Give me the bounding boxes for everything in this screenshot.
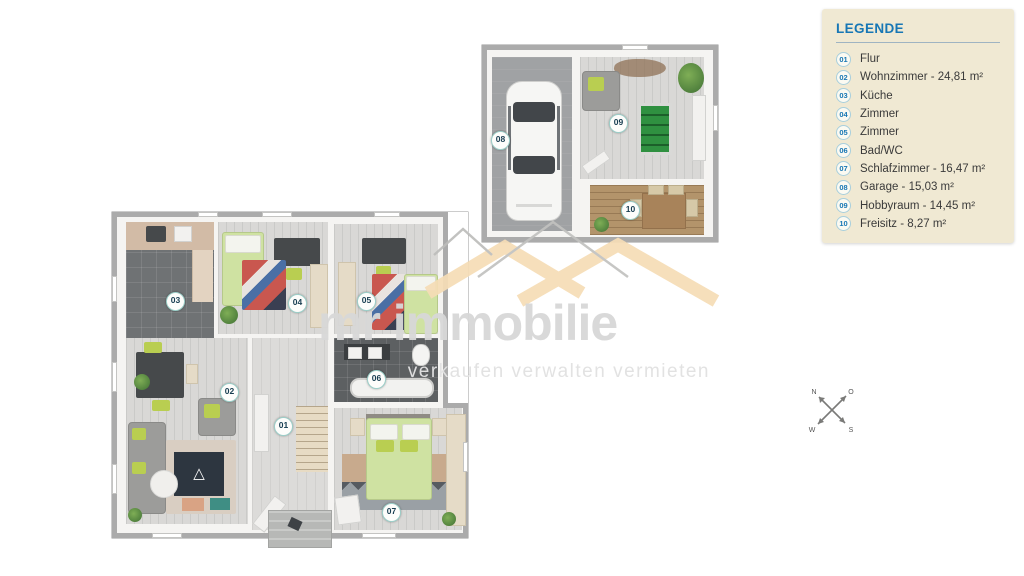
deck-chair-top-2 (668, 185, 684, 195)
window (622, 45, 648, 50)
legend-label: Küche (860, 90, 893, 102)
deck-chair-top-1 (648, 185, 664, 195)
legend-item: 10 Freisitz - 8,27 m² (836, 215, 1000, 233)
dining-chair-right (186, 364, 198, 384)
ottoman (150, 470, 178, 498)
roof-gray-left (434, 229, 492, 255)
car (506, 81, 562, 221)
legend-badge: 09 (836, 198, 851, 213)
kitchen-counter-side (192, 250, 213, 302)
legend-item: 05 Zimmer (836, 123, 1000, 141)
room-badge-08: 08 (491, 131, 510, 150)
chair-room04 (286, 268, 302, 280)
rug-orange-patch (182, 498, 204, 511)
legend-badge: 08 (836, 180, 851, 195)
legend-label: Garage - 15,03 m² (860, 181, 954, 193)
hobby-plant (678, 63, 704, 93)
window (713, 105, 718, 131)
bed-green-pillow-1 (376, 440, 394, 452)
legend-label: Zimmer (860, 126, 899, 138)
legend-label: Wohnzimmer - 24,81 m² (860, 71, 983, 83)
legend-item: 08 Garage - 15,03 m² (836, 178, 1000, 196)
window (112, 276, 117, 302)
hobby-armchair-pillow (588, 77, 604, 91)
room-badge-04: 04 (288, 294, 307, 313)
legend-item: 06 Bad/WC (836, 141, 1000, 159)
bed-green-pillow-2 (400, 440, 418, 452)
window (112, 362, 117, 392)
room-badge-07: 07 (382, 503, 401, 522)
stove (146, 226, 166, 242)
desk-room05 (362, 238, 406, 264)
armchair-pillow (204, 404, 220, 418)
legend-label: Bad/WC (860, 145, 903, 157)
legend-badge: 10 (836, 216, 851, 231)
rug-room04 (242, 260, 286, 310)
legend-panel: LEGENDE 01 Flur 02 Wohnzimmer - 24,81 m²… (822, 9, 1014, 243)
floorplan-page: { "legend": { "title": "LEGENDE", "items… (0, 0, 1024, 576)
plant-bedroom (442, 512, 456, 526)
car-windshield (513, 102, 555, 122)
window (463, 442, 468, 472)
legend-badge: 01 (836, 52, 851, 67)
window (198, 212, 218, 217)
legend-badge: 05 (836, 125, 851, 140)
staircase (296, 406, 328, 472)
entrance-porch (268, 510, 332, 548)
legend-label: Freisitz - 8,27 m² (860, 218, 946, 230)
car-rear-window (513, 156, 555, 174)
legend-item: 02 Wohnzimmer - 24,81 m² (836, 68, 1000, 86)
brand-tagline: verkaufen verwalten vermieten (325, 361, 710, 383)
legend-item: 09 Hobbyraum - 14,45 m² (836, 196, 1000, 214)
hobby-counter (692, 95, 706, 161)
legend-badge: 06 (836, 143, 851, 158)
legend-item: 07 Schlafzimmer - 16,47 m² (836, 160, 1000, 178)
legend-item: 01 Flur (836, 50, 1000, 68)
room-badge-09: 09 (609, 114, 628, 133)
compass-label-south: S (849, 427, 854, 434)
plant-living-1 (134, 374, 150, 390)
compass-label-west: W (809, 427, 816, 434)
plant-living-2 (128, 508, 142, 522)
legend-badge: 04 (836, 107, 851, 122)
hall-cabinet (254, 394, 269, 452)
compass-rose: N O W S (806, 384, 858, 436)
bedroom-desk (334, 494, 362, 525)
sofa-pillow-2 (132, 462, 146, 474)
foosball-table (638, 103, 672, 155)
kitchen-counter (126, 222, 214, 250)
compass-label-east: O (848, 389, 854, 396)
bed-pillow-2 (402, 424, 430, 440)
pillow-room04 (225, 235, 261, 253)
brand-watermark: mr immobilie (318, 294, 617, 352)
legend-divider (836, 42, 1000, 43)
legend-item: 03 Küche (836, 87, 1000, 105)
bed-pillow-1 (370, 424, 398, 440)
kitchen-sink (174, 226, 192, 242)
porch-mat (287, 517, 302, 531)
legend-badge: 02 (836, 70, 851, 85)
car-side-window-right (557, 106, 560, 170)
window (152, 533, 182, 538)
room-badge-01: 01 (274, 417, 293, 436)
legend-badge: 07 (836, 161, 851, 176)
legend-label: Flur (860, 53, 880, 65)
compass-label-north: N (811, 389, 816, 396)
dining-chair-bottom (152, 400, 170, 411)
legend-item: 04 Zimmer (836, 105, 1000, 123)
window (262, 212, 292, 217)
window (112, 464, 117, 494)
window (374, 212, 400, 217)
nightstand-right (432, 418, 447, 436)
legend-label: Hobbyraum - 14,45 m² (860, 200, 975, 212)
legend-label: Zimmer (860, 108, 899, 120)
sofa-pillow-1 (132, 428, 146, 440)
window (362, 533, 396, 538)
room-badge-03: 03 (166, 292, 185, 311)
rug-dark-block: △ (174, 452, 224, 496)
rug-teal-patch (210, 498, 230, 510)
legend-badge: 03 (836, 88, 851, 103)
legend-label: Schlafzimmer - 16,47 m² (860, 163, 985, 175)
room-badge-02: 02 (220, 383, 239, 402)
dining-chair-top (144, 342, 162, 353)
plant-room04 (220, 306, 238, 324)
nightstand-left (350, 418, 365, 436)
legend-title: LEGENDE (836, 21, 1000, 36)
